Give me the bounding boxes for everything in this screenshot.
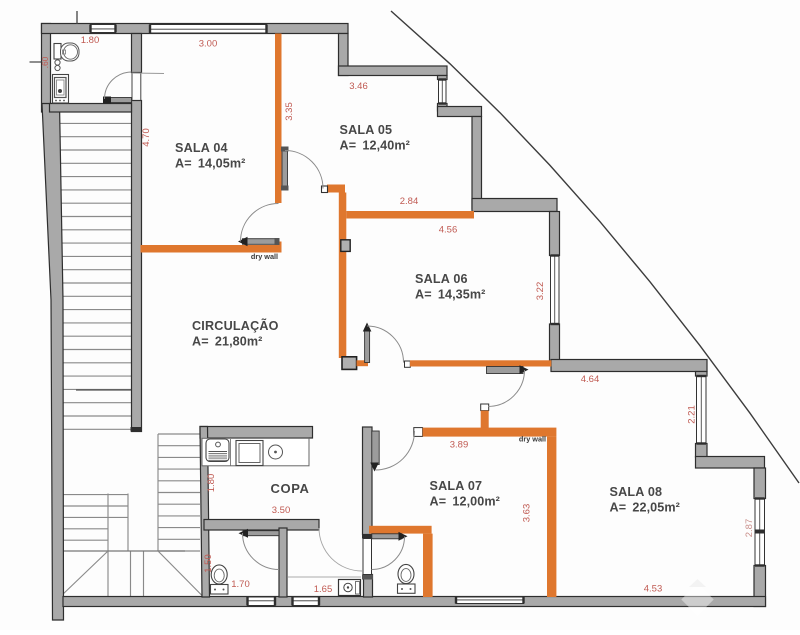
svg-text:2.84: 2.84 [400,196,419,207]
svg-text:SALA 08: SALA 08 [610,485,663,499]
svg-text:.60: .60 [40,56,50,68]
svg-text:SALA 07: SALA 07 [430,479,483,493]
svg-text:1.80: 1.80 [81,35,100,46]
svg-text:SALA 04: SALA 04 [175,141,228,155]
svg-text:1.70: 1.70 [231,579,250,590]
svg-text:3.00: 3.00 [199,39,218,50]
svg-text:dry wall: dry wall [519,435,546,444]
svg-text:A= 21,80m²: A= 21,80m² [192,335,262,349]
svg-text:4.70: 4.70 [141,128,152,147]
svg-text:A= 14,05m²: A= 14,05m² [175,157,245,171]
svg-text:2.87: 2.87 [744,519,755,538]
svg-text:3.22: 3.22 [535,282,546,301]
svg-text:1.80: 1.80 [206,474,217,493]
svg-text:2.21: 2.21 [687,405,698,424]
svg-text:SALA 05: SALA 05 [340,123,393,137]
svg-text:3.89: 3.89 [450,440,469,451]
svg-text:4.56: 4.56 [439,225,458,236]
svg-text:3.63: 3.63 [522,504,533,523]
svg-text:3.50: 3.50 [272,505,291,516]
svg-text:dry wall: dry wall [251,252,278,261]
svg-text:3.46: 3.46 [349,81,368,92]
svg-text:COPA: COPA [271,481,310,496]
svg-text:3.35: 3.35 [284,102,295,121]
svg-text:1.65: 1.65 [314,584,333,595]
svg-text:1.50: 1.50 [203,554,214,573]
svg-text:A= 12,40m²: A= 12,40m² [340,139,410,153]
svg-text:4.53: 4.53 [644,584,663,595]
svg-text:A= 14,35m²: A= 14,35m² [415,288,485,302]
svg-text:A= 12,00m²: A= 12,00m² [430,495,500,509]
svg-text:SALA 06: SALA 06 [415,272,468,286]
svg-text:CIRCULAÇÃO: CIRCULAÇÃO [192,318,279,333]
svg-text:4.64: 4.64 [581,374,600,385]
svg-text:A= 22,05m²: A= 22,05m² [610,501,680,515]
